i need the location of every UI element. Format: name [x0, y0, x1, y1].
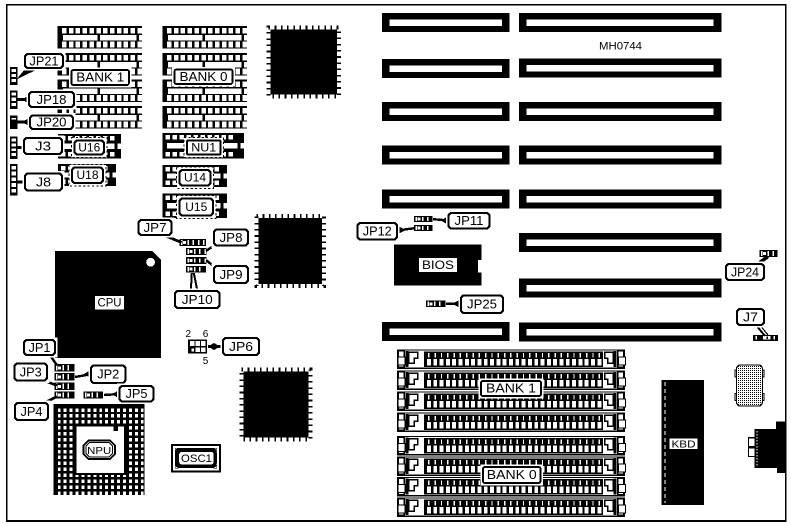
svg-text:6: 6 — [203, 329, 209, 340]
svg-text:CPU: CPU — [98, 296, 122, 310]
svg-text:J8: J8 — [36, 174, 51, 189]
svg-text:JP9: JP9 — [220, 267, 243, 282]
svg-text:JP7: JP7 — [144, 220, 167, 235]
svg-text:J3: J3 — [35, 138, 51, 153]
svg-text:U18: U18 — [77, 170, 99, 182]
svg-text:OSC1: OSC1 — [181, 453, 212, 465]
svg-text:JP20: JP20 — [37, 115, 67, 130]
svg-text:BIOS: BIOS — [422, 258, 454, 272]
svg-text:JP10: JP10 — [182, 292, 213, 307]
svg-text:JP25: JP25 — [467, 297, 497, 312]
svg-text:JP5: JP5 — [126, 386, 148, 401]
svg-text:JP2: JP2 — [97, 367, 119, 382]
svg-text:JP1: JP1 — [29, 340, 51, 355]
svg-text:BANK 0: BANK 0 — [180, 70, 228, 84]
svg-text:JP18: JP18 — [37, 92, 67, 107]
svg-text:5: 5 — [203, 356, 209, 367]
svg-text:KBD: KBD — [672, 438, 696, 450]
svg-text:BANK 1: BANK 1 — [76, 71, 124, 85]
svg-text:JP24: JP24 — [731, 264, 759, 279]
svg-text:MH0744: MH0744 — [599, 41, 642, 53]
svg-text:U16: U16 — [78, 142, 100, 154]
svg-text:JP12: JP12 — [363, 224, 392, 239]
svg-text:NPU: NPU — [87, 445, 111, 457]
svg-text:JP8: JP8 — [220, 230, 243, 245]
svg-text:J7: J7 — [743, 309, 758, 324]
svg-text:2: 2 — [186, 329, 192, 340]
svg-text:JP11: JP11 — [455, 213, 484, 228]
svg-text:BANK 0: BANK 0 — [487, 468, 537, 482]
svg-text:JP4: JP4 — [21, 404, 43, 419]
svg-text:NU1: NU1 — [191, 142, 216, 154]
svg-text:BANK 1: BANK 1 — [486, 382, 536, 396]
svg-text:U15: U15 — [185, 202, 207, 214]
svg-text:JP21: JP21 — [30, 53, 59, 68]
svg-text:JP6: JP6 — [229, 339, 253, 354]
svg-text:U14: U14 — [184, 173, 207, 185]
svg-text:JP3: JP3 — [20, 364, 42, 379]
